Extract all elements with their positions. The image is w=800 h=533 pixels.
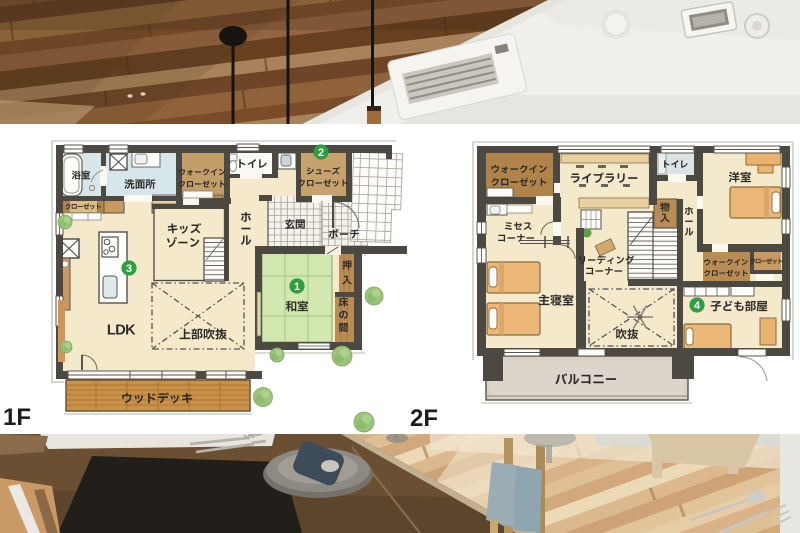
- svg-text:2: 2: [318, 147, 324, 159]
- svg-text:3: 3: [126, 263, 132, 275]
- svg-text:LDK: LDK: [107, 323, 136, 339]
- svg-text:4: 4: [694, 300, 701, 312]
- svg-text:1F: 1F: [3, 404, 31, 431]
- svg-text:2F: 2F: [410, 405, 438, 432]
- svg-text:1: 1: [294, 281, 300, 293]
